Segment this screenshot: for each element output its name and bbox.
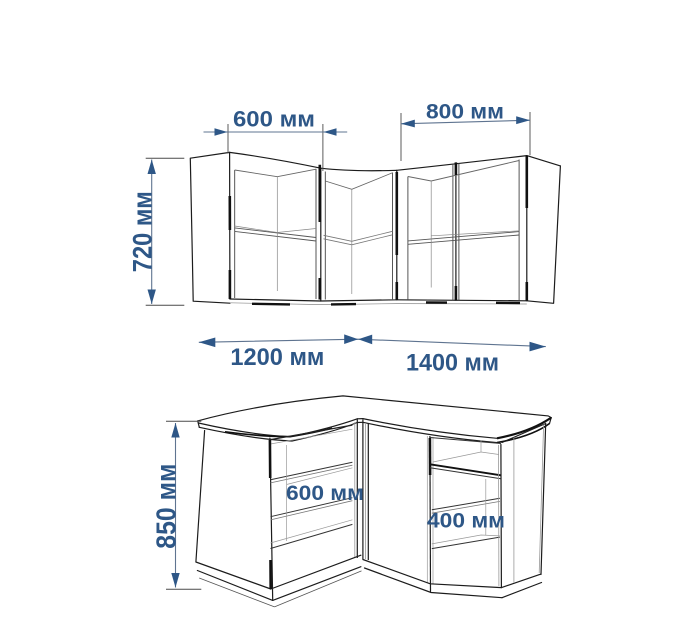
svg-text:720 мм: 720 мм [128, 191, 158, 272]
svg-text:400 мм: 400 мм [427, 509, 505, 533]
svg-text:1400 мм: 1400 мм [406, 350, 499, 377]
svg-text:850 мм: 850 мм [150, 464, 181, 549]
svg-text:600 мм: 600 мм [286, 482, 364, 505]
svg-text:1200 мм: 1200 мм [230, 344, 324, 371]
svg-text:600 мм: 600 мм [233, 107, 315, 132]
svg-text:800 мм: 800 мм [426, 101, 504, 124]
